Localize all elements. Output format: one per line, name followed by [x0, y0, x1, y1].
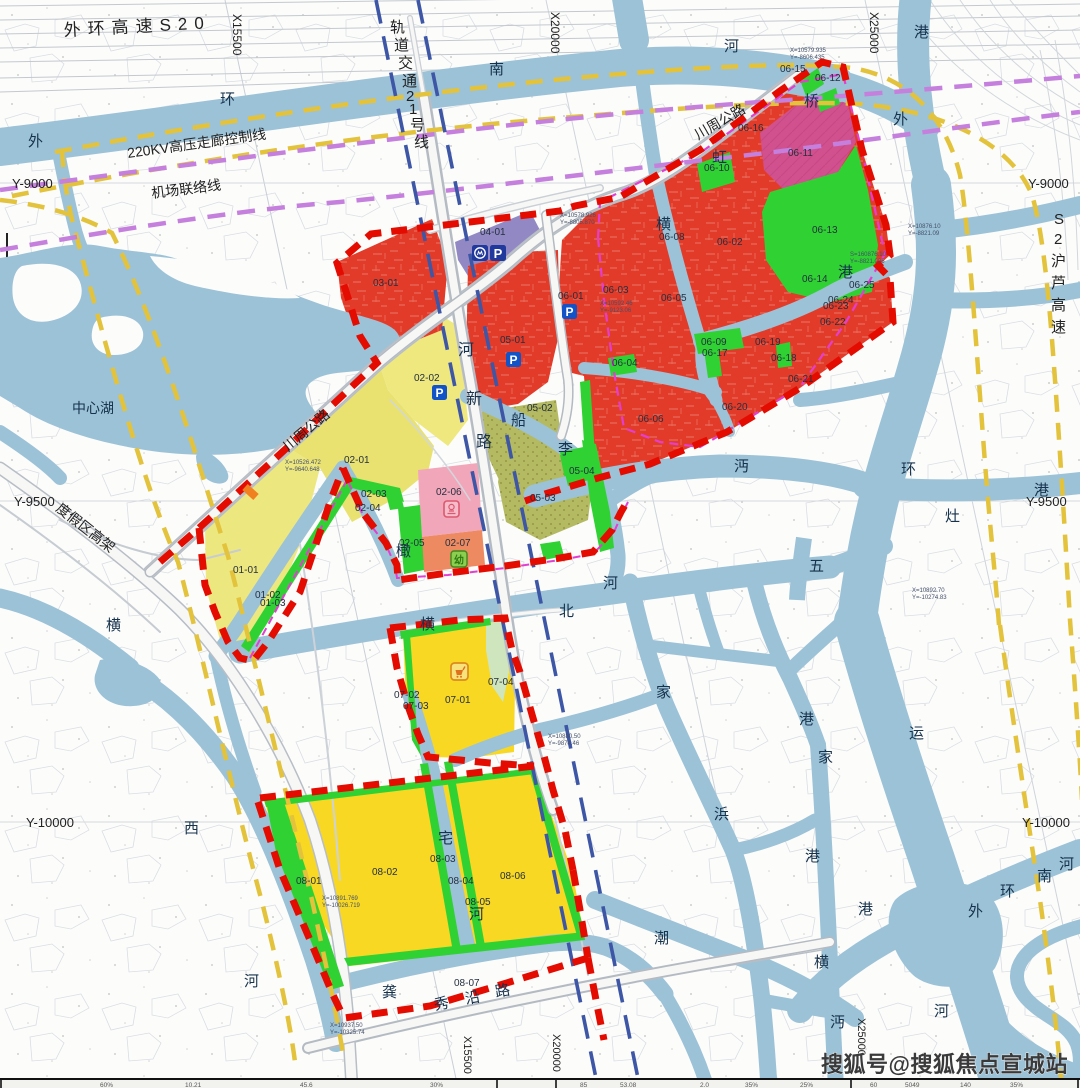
svg-text:新: 新 — [466, 390, 482, 408]
svg-text:140: 140 — [960, 1082, 971, 1088]
svg-text:06-10: 06-10 — [704, 163, 730, 174]
svg-text:08-01: 08-01 — [296, 876, 322, 887]
svg-text:路: 路 — [494, 982, 512, 1001]
svg-text:南: 南 — [489, 61, 504, 78]
svg-text:08-05: 08-05 — [465, 897, 491, 908]
svg-text:沪: 沪 — [1051, 253, 1066, 270]
svg-text:沿: 沿 — [464, 989, 482, 1008]
svg-text:河: 河 — [934, 1003, 949, 1020]
svg-text:30%: 30% — [430, 1082, 443, 1088]
svg-text:06-06: 06-06 — [638, 414, 664, 425]
svg-text:Y=-10325.74: Y=-10325.74 — [330, 1030, 365, 1036]
svg-text:河: 河 — [244, 973, 259, 990]
svg-text:85: 85 — [580, 1082, 588, 1088]
svg-text:X15500: X15500 — [230, 14, 244, 56]
svg-text:5049: 5049 — [905, 1082, 920, 1088]
svg-text:环: 环 — [1000, 883, 1015, 900]
svg-text:李: 李 — [558, 441, 573, 458]
svg-text:06-12: 06-12 — [815, 73, 841, 84]
svg-text:北: 北 — [559, 603, 574, 620]
svg-text:08-02: 08-02 — [372, 867, 398, 878]
svg-text:潮: 潮 — [654, 930, 669, 947]
svg-text:搜狐号@搜狐焦点宣城站: 搜狐号@搜狐焦点宣城站 — [821, 1052, 1068, 1077]
svg-text:02-01: 02-01 — [344, 455, 370, 466]
svg-text:港: 港 — [838, 264, 853, 281]
svg-text:港: 港 — [805, 848, 820, 865]
svg-text:横: 横 — [656, 216, 671, 233]
svg-text:高: 高 — [1051, 297, 1066, 314]
svg-text:60%: 60% — [100, 1082, 113, 1088]
svg-text:X=10892.70: X=10892.70 — [912, 588, 945, 594]
svg-text:中心湖: 中心湖 — [72, 400, 114, 416]
svg-text:08-07: 08-07 — [454, 978, 480, 989]
svg-text:河: 河 — [469, 906, 484, 923]
svg-text:2.0: 2.0 — [700, 1082, 709, 1088]
svg-text:速: 速 — [1051, 319, 1066, 336]
svg-text:横: 横 — [420, 616, 435, 633]
svg-text:Y-10000: Y-10000 — [1022, 815, 1070, 830]
svg-text:02-06: 02-06 — [436, 487, 462, 498]
svg-text:港: 港 — [914, 24, 929, 41]
svg-text:秀: 秀 — [433, 995, 451, 1014]
svg-text:西: 西 — [184, 820, 199, 837]
svg-text:P: P — [509, 353, 517, 367]
svg-text:07-04: 07-04 — [488, 677, 514, 688]
svg-text:06-15: 06-15 — [780, 64, 806, 75]
svg-text:船: 船 — [511, 412, 526, 429]
svg-text:港: 港 — [858, 901, 873, 918]
svg-text:港: 港 — [1034, 482, 1049, 499]
svg-text:外: 外 — [28, 133, 43, 150]
svg-text:07-02: 07-02 — [394, 690, 420, 701]
svg-text:幼: 幼 — [454, 554, 464, 567]
svg-text:08-03: 08-03 — [430, 854, 456, 865]
svg-text:家: 家 — [818, 749, 833, 766]
svg-text:龚: 龚 — [382, 984, 397, 1001]
svg-text:Y=-9123.06: Y=-9123.06 — [600, 308, 632, 314]
svg-text:交: 交 — [398, 54, 413, 72]
svg-text:06-17: 06-17 — [702, 348, 728, 359]
svg-text:P: P — [435, 386, 443, 400]
svg-text:06-21: 06-21 — [788, 374, 814, 385]
svg-text:06-14: 06-14 — [802, 274, 828, 285]
svg-text:05-03: 05-03 — [530, 493, 556, 504]
svg-text:02-04: 02-04 — [355, 503, 381, 514]
svg-text:25%: 25% — [800, 1082, 813, 1088]
svg-text:P: P — [494, 246, 503, 261]
svg-text:53.08: 53.08 — [620, 1082, 637, 1088]
svg-text:10.21: 10.21 — [185, 1082, 202, 1088]
svg-text:沔: 沔 — [734, 458, 749, 475]
svg-text:02-07: 02-07 — [445, 538, 471, 549]
svg-text:家: 家 — [656, 684, 671, 701]
svg-text:06-25: 06-25 — [849, 280, 875, 291]
svg-text:06-08: 06-08 — [659, 232, 685, 243]
svg-text:轨: 轨 — [390, 19, 405, 36]
svg-text:X25000: X25000 — [867, 12, 881, 54]
svg-text:Y-10000: Y-10000 — [26, 815, 74, 830]
svg-text:路: 路 — [476, 433, 492, 451]
svg-text:02-02: 02-02 — [414, 373, 440, 384]
svg-text:Y=-9874.46: Y=-9874.46 — [548, 741, 580, 747]
svg-text:04-01: 04-01 — [480, 227, 506, 238]
svg-text:02-05: 02-05 — [399, 538, 425, 549]
svg-text:号: 号 — [410, 117, 425, 134]
svg-text:桥: 桥 — [804, 93, 819, 110]
svg-text:河: 河 — [724, 38, 739, 55]
svg-text:X=10579.935: X=10579.935 — [790, 48, 827, 54]
svg-text:Y=-10274.83: Y=-10274.83 — [912, 595, 947, 601]
svg-text:X=10592.46: X=10592.46 — [600, 301, 633, 307]
svg-text:45.6: 45.6 — [300, 1082, 313, 1088]
svg-text:X20000: X20000 — [550, 1034, 562, 1072]
svg-text:01-01: 01-01 — [233, 565, 259, 576]
svg-text:Y=-9640.648: Y=-9640.648 — [285, 467, 320, 473]
svg-text:06-19: 06-19 — [755, 337, 781, 348]
svg-text:06-03: 06-03 — [603, 285, 629, 296]
svg-text:河: 河 — [458, 341, 474, 359]
svg-text:06-16: 06-16 — [738, 123, 764, 134]
svg-text:Y-9000: Y-9000 — [1028, 176, 1069, 191]
svg-text:05-04: 05-04 — [569, 466, 595, 477]
svg-text:05-01: 05-01 — [500, 335, 526, 346]
svg-text:Y-9500: Y-9500 — [14, 494, 55, 509]
svg-text:道: 道 — [394, 37, 409, 54]
svg-text:02-03: 02-03 — [361, 489, 387, 500]
svg-text:Y-9000: Y-9000 — [12, 176, 53, 191]
svg-text:X=10880.50: X=10880.50 — [548, 734, 581, 740]
svg-text:P: P — [565, 305, 573, 319]
svg-text:06-24: 06-24 — [828, 295, 854, 306]
svg-text:07-03: 07-03 — [403, 701, 429, 712]
svg-text:X=10526.472: X=10526.472 — [285, 460, 322, 466]
svg-text:河: 河 — [603, 575, 618, 592]
svg-text:X20000: X20000 — [548, 12, 562, 54]
svg-text:08-04: 08-04 — [448, 876, 474, 887]
svg-text:06-02: 06-02 — [717, 237, 743, 248]
svg-text:06-01: 06-01 — [558, 291, 584, 302]
svg-text:河: 河 — [1059, 856, 1074, 873]
svg-text:运: 运 — [909, 725, 924, 742]
svg-text:05-02: 05-02 — [527, 403, 553, 414]
svg-text:03-01: 03-01 — [373, 278, 399, 289]
svg-text:X25000: X25000 — [855, 1018, 867, 1056]
svg-text:五: 五 — [809, 558, 824, 575]
svg-text:灶: 灶 — [945, 508, 960, 525]
svg-text:南: 南 — [1037, 868, 1052, 885]
svg-text:浜: 浜 — [714, 806, 729, 823]
svg-text:01-03: 01-03 — [260, 598, 286, 609]
svg-text:Y=-8606.435: Y=-8606.435 — [790, 55, 825, 61]
svg-text:60: 60 — [870, 1082, 878, 1088]
svg-text:S: S — [1054, 211, 1064, 228]
svg-text:1: 1 — [409, 101, 417, 118]
svg-text:06-05: 06-05 — [661, 293, 687, 304]
svg-text:外: 外 — [893, 111, 908, 128]
svg-text:2: 2 — [1054, 231, 1062, 248]
svg-text:线: 线 — [414, 134, 429, 151]
svg-text:07-01: 07-01 — [445, 695, 471, 706]
svg-text:芦: 芦 — [1051, 275, 1066, 292]
svg-text:Y=-8821.096: Y=-8821.096 — [850, 259, 885, 265]
svg-text:横: 横 — [106, 617, 121, 634]
svg-text:X=10876.10: X=10876.10 — [908, 224, 941, 230]
svg-text:Y=-8821.09: Y=-8821.09 — [908, 231, 940, 237]
svg-text:X=10578.926: X=10578.926 — [560, 213, 597, 219]
svg-text:06-22: 06-22 — [820, 317, 846, 328]
svg-text:35%: 35% — [745, 1082, 758, 1088]
svg-text:宅: 宅 — [438, 830, 453, 847]
svg-text:Y=-10026.719: Y=-10026.719 — [322, 903, 361, 909]
svg-text:06-20: 06-20 — [722, 402, 748, 413]
svg-text:X15500: X15500 — [461, 1036, 473, 1074]
svg-text:X=10891.769: X=10891.769 — [322, 896, 359, 902]
svg-text:08-06: 08-06 — [500, 871, 526, 882]
svg-text:35%: 35% — [1010, 1082, 1023, 1088]
svg-text:港: 港 — [799, 711, 814, 728]
svg-text:沔: 沔 — [830, 1014, 845, 1031]
svg-text:S=160876.10: S=160876.10 — [850, 252, 887, 258]
svg-text:06-18: 06-18 — [771, 353, 797, 364]
svg-text:外: 外 — [968, 903, 983, 920]
svg-text:06-13: 06-13 — [812, 225, 838, 236]
svg-text:X=10937.50: X=10937.50 — [330, 1023, 363, 1029]
svg-text:Y=-8805.870: Y=-8805.870 — [560, 220, 595, 226]
svg-text:横: 横 — [814, 954, 829, 971]
svg-text:06-09: 06-09 — [701, 337, 727, 348]
svg-text:环: 环 — [220, 91, 235, 108]
svg-text:06-04: 06-04 — [612, 358, 638, 369]
svg-text:环: 环 — [901, 461, 916, 478]
svg-text:06-11: 06-11 — [788, 148, 813, 159]
